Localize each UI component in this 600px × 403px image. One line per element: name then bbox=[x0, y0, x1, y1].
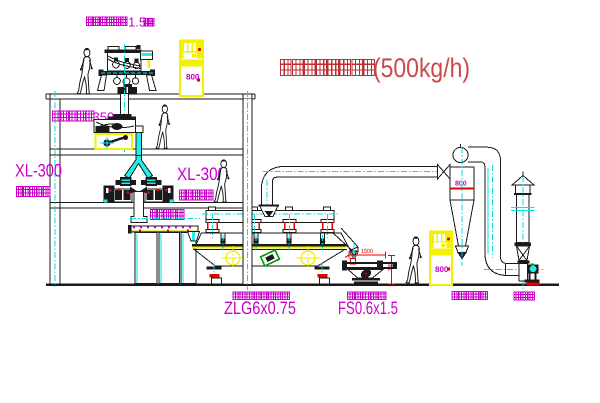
svg-text:800: 800 bbox=[435, 265, 449, 274]
svg-text:FS0.6x1.5: FS0.6x1.5 bbox=[338, 298, 398, 318]
svg-text:ZLG6x0.75: ZLG6x0.75 bbox=[224, 298, 296, 318]
svg-text:800: 800 bbox=[455, 181, 467, 188]
svg-text:1500: 1500 bbox=[361, 248, 374, 255]
svg-text:(500kg/h): (500kg/h) bbox=[373, 53, 470, 83]
svg-text:1.5: 1.5 bbox=[128, 15, 146, 30]
svg-text:XL-300: XL-300 bbox=[15, 161, 62, 181]
svg-text:XL-300: XL-300 bbox=[177, 164, 226, 184]
